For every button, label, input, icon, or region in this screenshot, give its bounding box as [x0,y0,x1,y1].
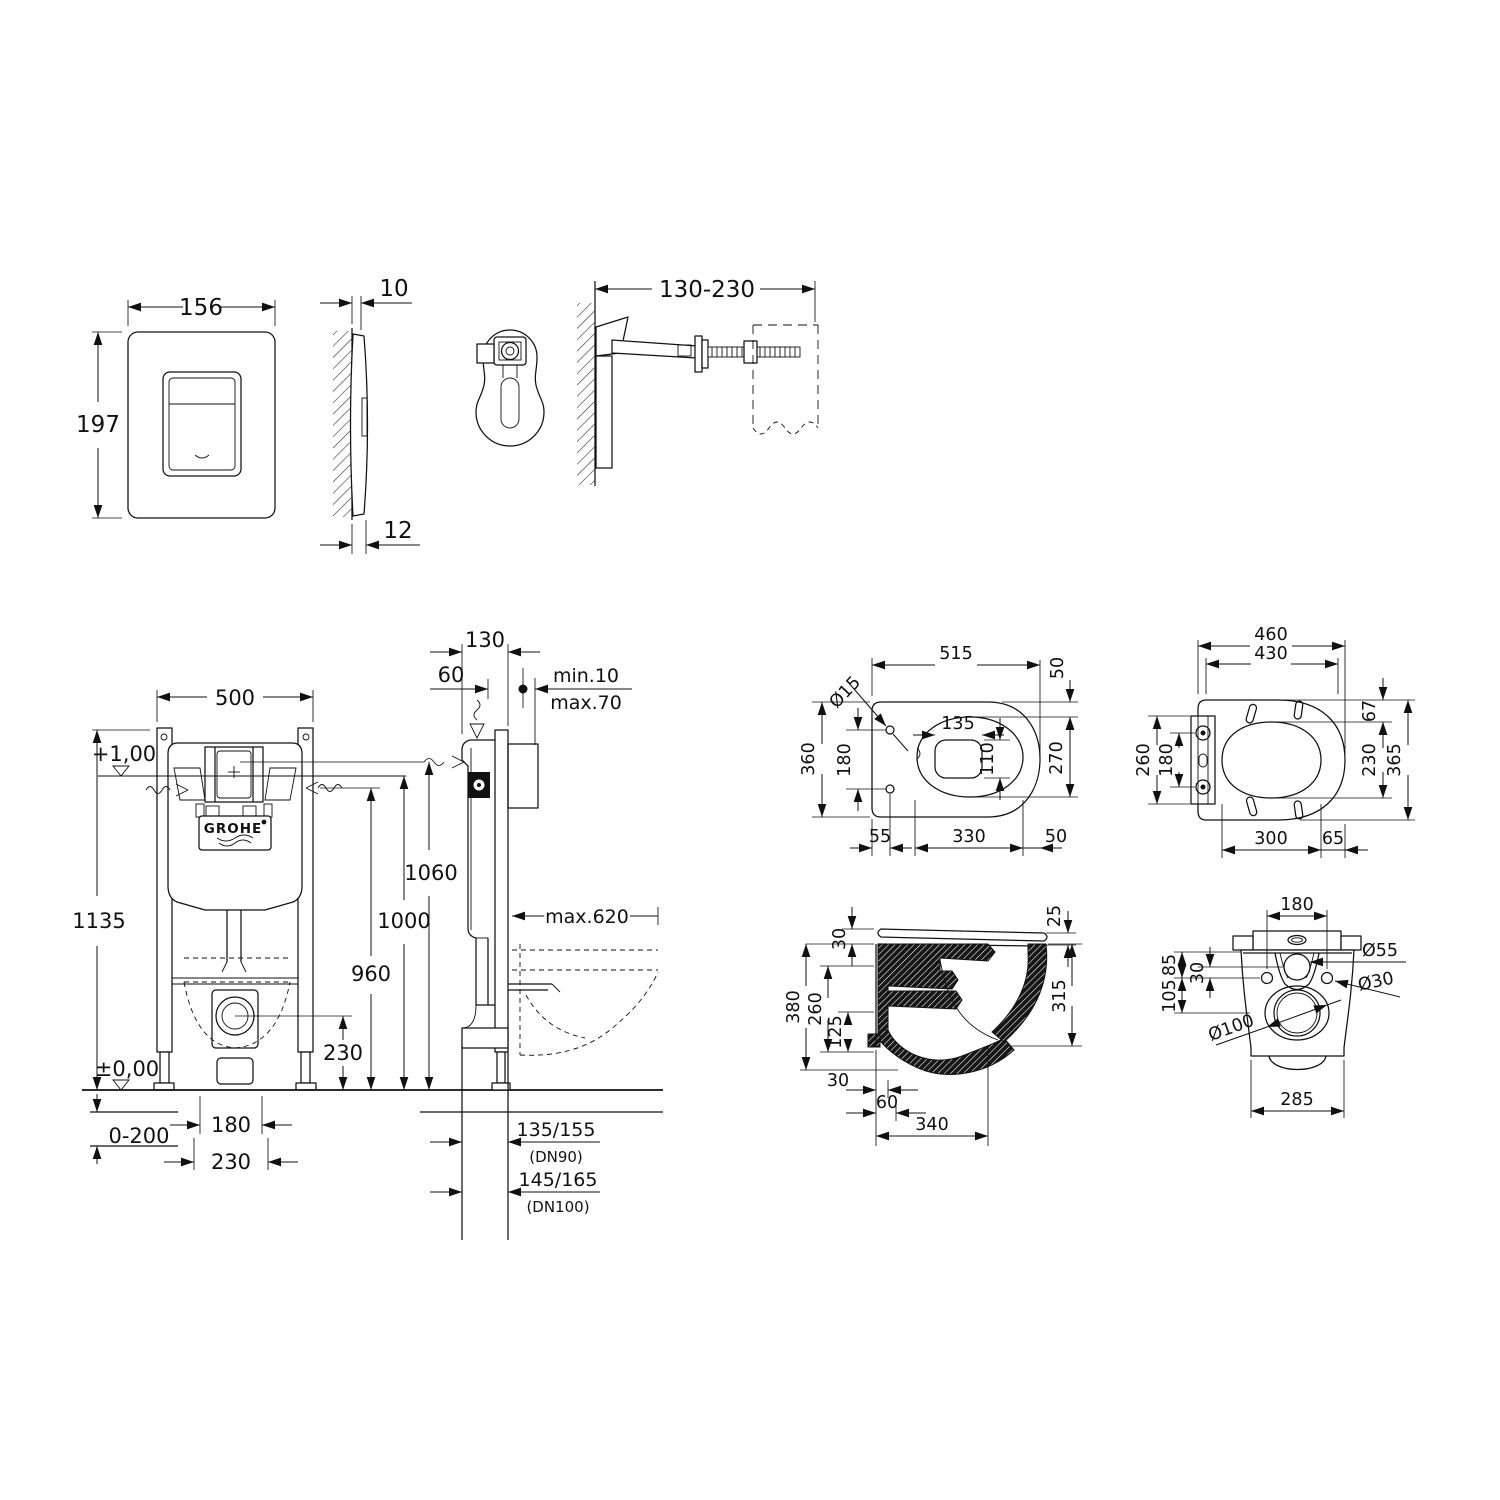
dim-frame-width: 500 [215,686,255,710]
wall-hatching [577,303,595,485]
dim-seat-length: 460 [1254,625,1287,645]
dim-wall-gap: 30 [827,1071,849,1091]
dim-hinge-spacing: 180 [1157,743,1177,776]
technical-drawing-sheet: 156 197 10 12 [0,0,1500,1500]
dim-hole-spacing: 180 [835,743,855,776]
dim-wall-max: max.70 [550,692,622,714]
dim-frame-depth: 130 [465,628,505,652]
dim-bracket-range: 130-230 [659,277,755,303]
dim-top-to-hole: 85 [1160,954,1180,976]
dim-bowl-length: 515 [939,644,972,664]
dim-inner-width: 135 [941,714,974,734]
dim-outlet-height: 230 [323,1041,363,1065]
plate-side-profile [351,334,368,516]
installation-drawing: 156 197 10 12 [0,0,1500,1500]
brand-label: GROHE [204,821,262,837]
dim-plate-gap: 10 [379,276,408,302]
frame-rail-profile [495,730,508,1052]
dim-fixing-spacing: 230 [211,1150,251,1174]
dim-outlet-dn100: 145/165 [519,1169,598,1191]
dim-wall-min: min.10 [553,665,619,687]
dim-bowl-width: 360 [799,742,819,775]
dim-side-clearance: max.620 [545,906,629,928]
dim-inner-depth: 110 [978,742,998,775]
dim-plate-height: 197 [76,412,120,438]
level-zero-label: ±0,00 [95,1057,159,1081]
dim-lid-length: 430 [1254,644,1287,664]
dim-front-offset: 60 [438,663,465,687]
dim-back-gap: 67 [1360,700,1380,722]
bracket-front-view [476,330,544,446]
dim-outlet-dn90: 135/155 [517,1119,596,1141]
rod-nut [744,341,757,363]
dim-rim-length: 330 [952,827,985,847]
dim-front-height: 315 [1050,979,1070,1012]
dim-seat-height: 30 [830,928,850,950]
mounting-plate [1253,931,1341,950]
wall-hatching [333,331,352,517]
dim-plate-thickness: 12 [383,518,412,544]
dim-inlet-diameter: Ø55 [1362,941,1398,961]
dim-bowl-height: 380 [784,990,804,1023]
dim-outlet-dn100-note: (DN100) [526,1198,589,1216]
dim-top-height: 1000 [377,909,430,933]
dim-body-width: 285 [1280,1090,1313,1110]
dim-front-gap: 50 [1045,827,1067,847]
dim-water-depth: 125 [826,1015,846,1048]
dim-seat-width: 365 [1385,743,1405,776]
dim-outlet-dn90-note: (DN90) [529,1148,583,1166]
level-plus-label: +1,00 [92,742,156,766]
frame-foot-left [160,1052,169,1083]
dim-rim-width: 270 [1047,741,1067,774]
dim-flush-height: 1060 [404,861,457,885]
dim-lid-edge: 25 [1045,905,1065,927]
dim-frame-height: 1135 [72,909,125,933]
dim-back-gap: 50 [1048,657,1068,679]
dim-bowl-depth: 260 [806,992,826,1025]
dim-inlet-height: 960 [351,962,391,986]
hinge-plate [1191,716,1215,804]
dim-ring-width: 230 [1360,743,1380,776]
seat-outline [1198,700,1345,820]
dim-hole-offset: 55 [869,827,891,847]
dim-plate-width: 156 [179,295,223,321]
bracket-tab [477,344,494,363]
dim-bolt-spacing: 180 [211,1113,251,1137]
frame-foot-right [301,1052,310,1083]
dim-hinge-width: 260 [1134,743,1154,776]
dim-outlet-offset: 60 [876,1093,898,1113]
dim-front-gap: 65 [1322,829,1344,849]
dim-floor-adjust: 0-200 [108,1124,169,1148]
dim-hole-to-outlet: 105 [1160,979,1180,1012]
dim-bowl-depth-total: 340 [915,1115,948,1135]
dim-ring-length: 300 [1254,829,1287,849]
flush-plate-outline [128,332,275,518]
outlet-connector [462,1028,508,1048]
dim-inlet-to-hole: 30 [1188,962,1208,984]
dim-hole-spacing: 180 [1280,895,1313,915]
